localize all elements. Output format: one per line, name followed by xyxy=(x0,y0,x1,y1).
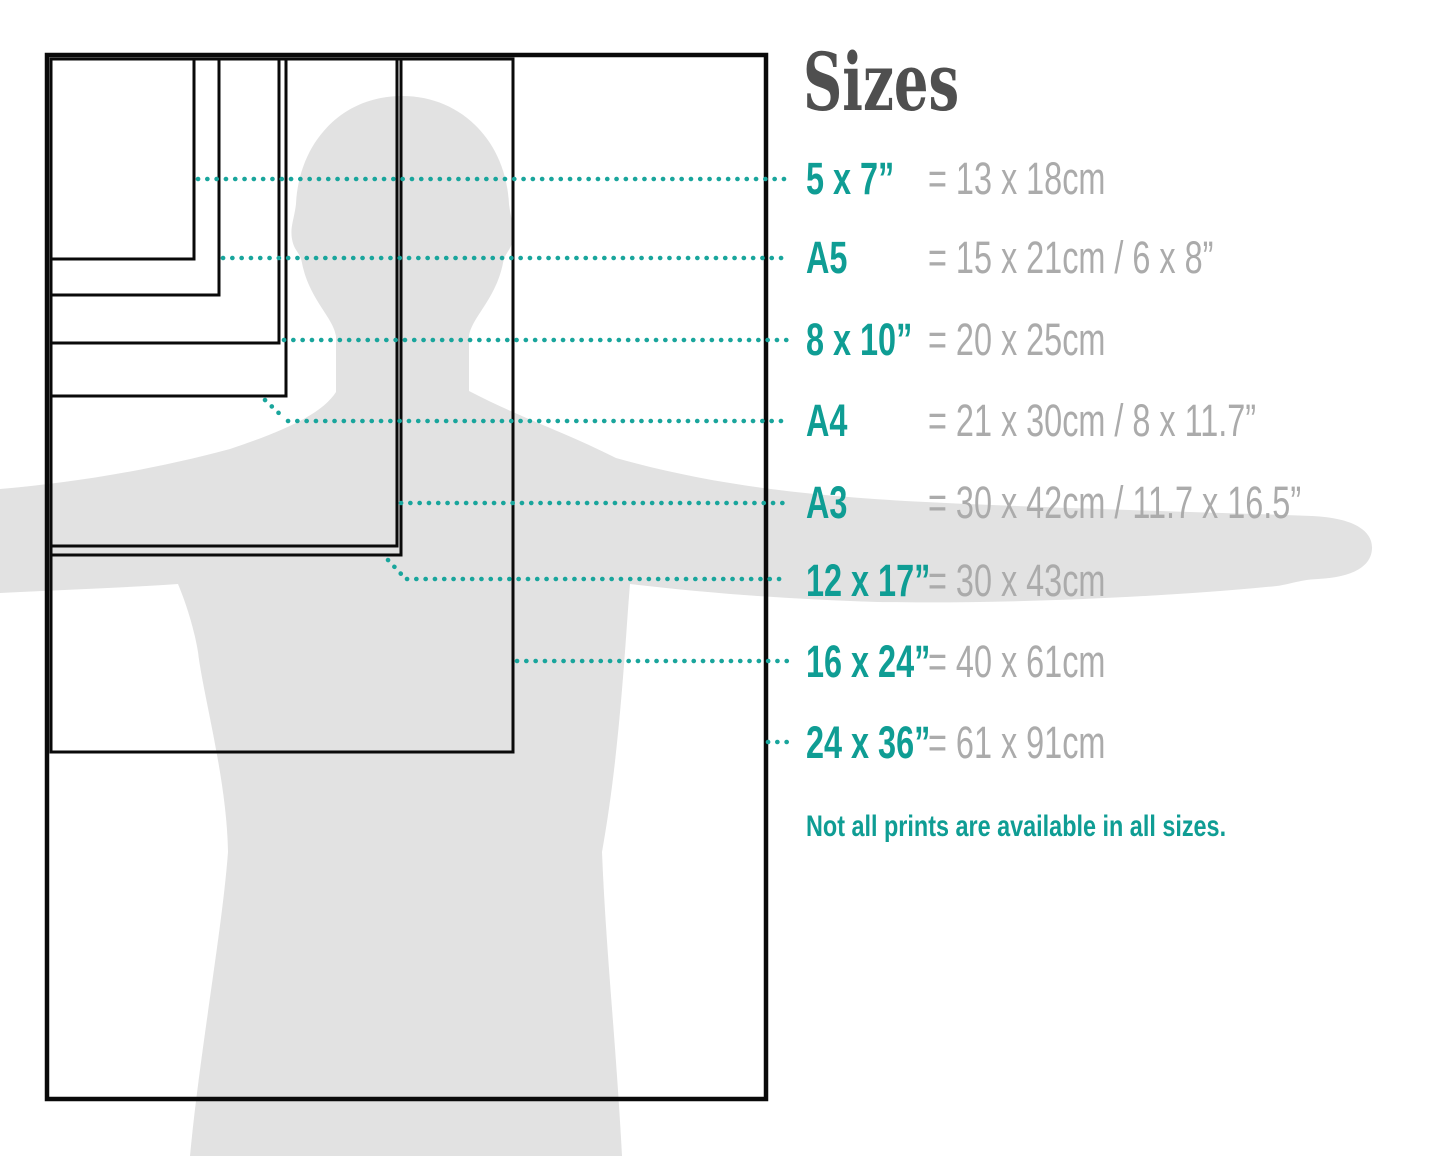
size-label: 16 x 24” xyxy=(806,637,930,687)
size-value: = 21 x 30cm / 8 x 11.7” xyxy=(928,396,1256,446)
size-row-5x7: 5 x 7” = 13 x 18cm xyxy=(0,154,1445,204)
size-value: = 20 x 25cm xyxy=(928,315,1105,365)
page-title: Sizes xyxy=(803,40,959,124)
size-chart-infographic: Sizes 5 x 7” = 13 x 18cm A5 = 15 x 21cm … xyxy=(0,0,1445,1156)
size-row-16x24: 16 x 24” = 40 x 61cm xyxy=(0,637,1445,687)
size-label: A4 xyxy=(806,396,847,446)
size-row-a4: A4 = 21 x 30cm / 8 x 11.7” xyxy=(0,396,1445,446)
size-value: = 15 x 21cm / 6 x 8” xyxy=(928,233,1213,283)
size-value: = 40 x 61cm xyxy=(928,637,1105,687)
availability-note: Not all prints are available in all size… xyxy=(806,810,1226,844)
size-label: 8 x 10” xyxy=(806,315,912,365)
size-label: A5 xyxy=(806,233,847,283)
size-label: A3 xyxy=(806,478,847,528)
size-label: 5 x 7” xyxy=(806,154,894,204)
size-value: = 61 x 91cm xyxy=(928,718,1105,768)
size-row-24x36: 24 x 36” = 61 x 91cm xyxy=(0,718,1445,768)
size-label: 12 x 17” xyxy=(806,556,930,606)
size-value: = 30 x 43cm xyxy=(928,556,1105,606)
size-row-a3: A3 = 30 x 42cm / 11.7 x 16.5” xyxy=(0,478,1445,528)
size-row-a5: A5 = 15 x 21cm / 6 x 8” xyxy=(0,233,1445,283)
size-row-12x17: 12 x 17” = 30 x 43cm xyxy=(0,556,1445,606)
size-value: = 13 x 18cm xyxy=(928,154,1105,204)
size-row-8x10: 8 x 10” = 20 x 25cm xyxy=(0,315,1445,365)
size-value: = 30 x 42cm / 11.7 x 16.5” xyxy=(928,478,1301,528)
size-label: 24 x 36” xyxy=(806,718,930,768)
